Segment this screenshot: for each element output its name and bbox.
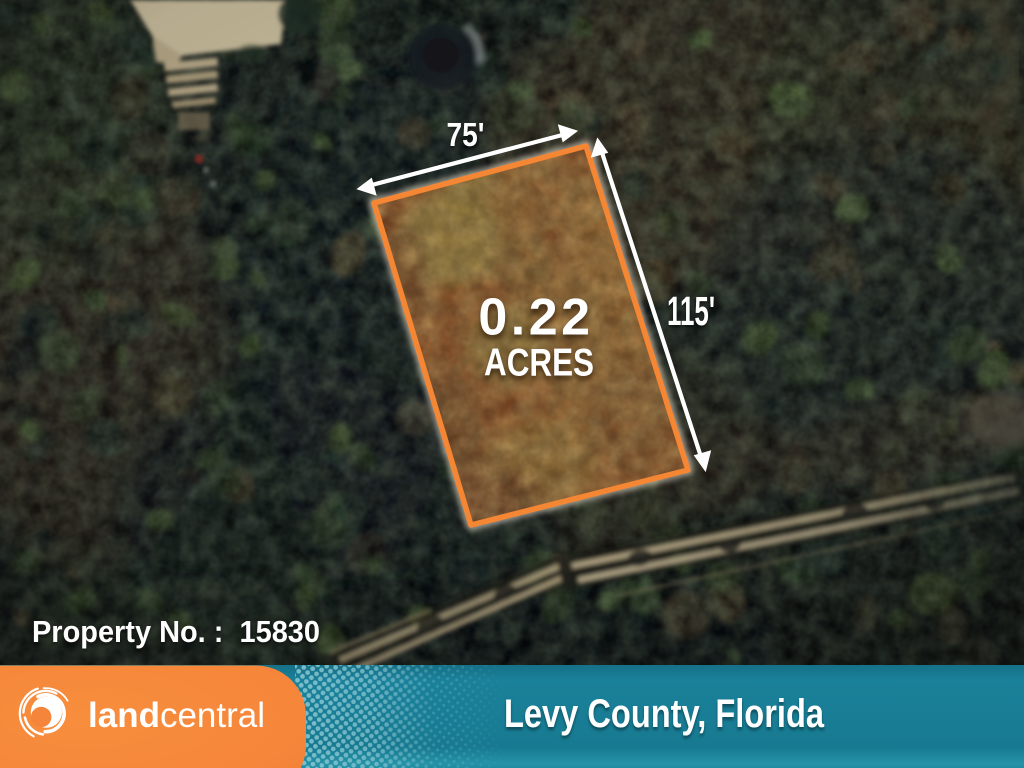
- svg-text:Levy County, Florida: Levy County, Florida: [504, 692, 825, 736]
- svg-text:ACRES: ACRES: [484, 342, 594, 385]
- svg-text:75': 75': [447, 116, 485, 153]
- svg-text:landcentral: landcentral: [88, 696, 265, 735]
- svg-text:115': 115': [667, 288, 715, 334]
- svg-text:Property No. : 15830: Property No. : 15830: [32, 614, 320, 649]
- svg-text:0.22: 0.22: [478, 289, 593, 347]
